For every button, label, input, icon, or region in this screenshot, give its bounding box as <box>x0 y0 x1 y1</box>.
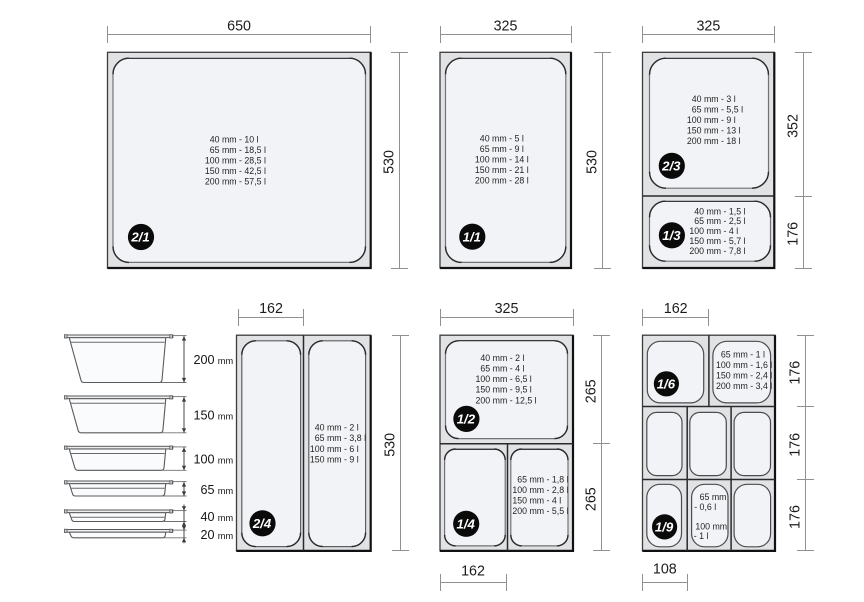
svg-text:150: 150 <box>310 454 325 464</box>
svg-text:mm: mm <box>709 492 726 502</box>
svg-text:mm - 1,6 l: mm - 1,6 l <box>731 360 773 370</box>
svg-text:mm - 10 l: mm - 10 l <box>220 134 259 144</box>
svg-text:162: 162 <box>461 563 485 579</box>
svg-text:65: 65 <box>315 433 325 443</box>
svg-text:150: 150 <box>716 371 731 381</box>
svg-text:mm: mm <box>218 412 234 422</box>
svg-text:2/1: 2/1 <box>130 230 149 245</box>
svg-text:162: 162 <box>259 301 283 317</box>
svg-text:100: 100 <box>476 374 491 384</box>
svg-text:100: 100 <box>716 360 731 370</box>
svg-text:mm - 2,5 l: mm - 2,5 l <box>704 216 746 226</box>
svg-text:265: 265 <box>583 379 599 403</box>
svg-text:325: 325 <box>495 301 519 317</box>
svg-text:1/9: 1/9 <box>655 520 674 535</box>
svg-text:65: 65 <box>700 492 710 502</box>
svg-text:40: 40 <box>315 423 325 433</box>
svg-text:mm - 18 l: mm - 18 l <box>702 136 741 146</box>
svg-text:mm - 42,5 l: mm - 42,5 l <box>220 166 266 176</box>
svg-text:mm - 9 l: mm - 9 l <box>325 454 359 464</box>
svg-text:mm: mm <box>218 513 234 523</box>
svg-text:1/2: 1/2 <box>457 412 476 427</box>
svg-text:2/3: 2/3 <box>661 159 681 174</box>
svg-text:100: 100 <box>512 485 527 495</box>
svg-text:- 0,6 l: - 0,6 l <box>694 502 716 512</box>
svg-text:mm - 1,5 l: mm - 1,5 l <box>704 206 746 216</box>
svg-text:65: 65 <box>200 483 214 497</box>
svg-text:150: 150 <box>476 385 491 395</box>
svg-text:mm - 9,5 l: mm - 9,5 l <box>490 385 532 395</box>
svg-text:162: 162 <box>664 301 688 317</box>
svg-text:1/4: 1/4 <box>457 517 476 532</box>
svg-text:mm - 5,7 l: mm - 5,7 l <box>704 236 746 246</box>
svg-text:1/1: 1/1 <box>463 229 481 244</box>
svg-text:mm - 18,5 l: mm - 18,5 l <box>220 145 266 155</box>
svg-text:mm - 2 l: mm - 2 l <box>490 353 524 363</box>
svg-text:mm - 6,5 l: mm - 6,5 l <box>490 374 532 384</box>
svg-text:100: 100 <box>695 522 710 532</box>
svg-text:200: 200 <box>512 506 527 516</box>
svg-text:40: 40 <box>480 133 490 143</box>
svg-text:40: 40 <box>480 353 490 363</box>
svg-text:mm - 14 l: mm - 14 l <box>490 155 529 165</box>
svg-text:mm - 2,4 l: mm - 2,4 l <box>731 371 773 381</box>
svg-text:mm: mm <box>218 531 234 541</box>
svg-text:150: 150 <box>475 165 490 175</box>
svg-text:200: 200 <box>687 136 702 146</box>
svg-text:65: 65 <box>480 364 490 374</box>
svg-text:100: 100 <box>205 156 220 166</box>
svg-text:mm: mm <box>710 522 727 532</box>
svg-text:mm - 5,5 l: mm - 5,5 l <box>527 506 569 516</box>
svg-text:176: 176 <box>787 433 803 457</box>
svg-text:mm - 28,5 l: mm - 28,5 l <box>220 156 266 166</box>
svg-text:40: 40 <box>210 134 220 144</box>
svg-text:65: 65 <box>517 474 527 484</box>
svg-text:mm - 2 l: mm - 2 l <box>325 423 359 433</box>
svg-text:mm - 2,8 l: mm - 2,8 l <box>527 485 569 495</box>
svg-text:mm - 5,5 l: mm - 5,5 l <box>702 104 744 114</box>
svg-text:352: 352 <box>785 114 801 138</box>
svg-text:mm - 57,5 l: mm - 57,5 l <box>220 177 266 187</box>
svg-text:mm - 28 l: mm - 28 l <box>490 176 529 186</box>
svg-text:150: 150 <box>193 409 214 423</box>
svg-text:40: 40 <box>694 206 704 216</box>
svg-text:176: 176 <box>787 505 803 529</box>
svg-text:325: 325 <box>696 18 720 34</box>
svg-text:100: 100 <box>310 444 325 454</box>
svg-text:176: 176 <box>785 222 801 246</box>
svg-text:mm - 4 l: mm - 4 l <box>490 364 524 374</box>
svg-text:265: 265 <box>583 487 599 511</box>
svg-text:100: 100 <box>689 226 704 236</box>
svg-text:530: 530 <box>382 433 398 457</box>
svg-text:530: 530 <box>584 150 600 174</box>
svg-text:mm - 5 l: mm - 5 l <box>490 133 524 143</box>
svg-text:mm - 13 l: mm - 13 l <box>702 126 741 136</box>
svg-text:mm - 7,8 l: mm - 7,8 l <box>704 246 746 256</box>
svg-text:40: 40 <box>692 94 702 104</box>
svg-text:530: 530 <box>381 150 397 174</box>
svg-text:108: 108 <box>653 562 677 578</box>
svg-text:1/3: 1/3 <box>662 228 681 243</box>
svg-text:650: 650 <box>227 18 251 34</box>
svg-text:150: 150 <box>687 126 702 136</box>
svg-text:176: 176 <box>787 361 803 385</box>
svg-text:mm - 3,4 l: mm - 3,4 l <box>731 381 773 391</box>
svg-text:65: 65 <box>480 144 490 154</box>
svg-text:1/6: 1/6 <box>657 377 676 392</box>
svg-text:- 1 l: - 1 l <box>694 531 709 541</box>
svg-text:65: 65 <box>692 104 702 114</box>
svg-text:100: 100 <box>475 155 490 165</box>
svg-text:150: 150 <box>205 166 220 176</box>
svg-text:65: 65 <box>694 216 704 226</box>
svg-text:100: 100 <box>687 115 702 125</box>
svg-text:200: 200 <box>475 176 490 186</box>
svg-text:65: 65 <box>721 349 731 359</box>
svg-text:mm - 1 l: mm - 1 l <box>731 349 765 359</box>
svg-text:mm - 3,8 l: mm - 3,8 l <box>325 433 367 443</box>
svg-text:100: 100 <box>193 453 214 467</box>
svg-text:mm - 4 l: mm - 4 l <box>704 226 738 236</box>
svg-text:40: 40 <box>200 510 214 524</box>
svg-text:150: 150 <box>512 496 527 506</box>
svg-text:mm: mm <box>218 456 234 466</box>
svg-text:65: 65 <box>210 145 220 155</box>
svg-text:mm - 3 l: mm - 3 l <box>702 94 736 104</box>
svg-text:mm - 12,5 l: mm - 12,5 l <box>490 395 536 405</box>
svg-text:mm - 1,8 l: mm - 1,8 l <box>527 474 569 484</box>
svg-text:2/4: 2/4 <box>252 516 272 531</box>
svg-text:mm - 4 l: mm - 4 l <box>527 496 561 506</box>
svg-text:mm: mm <box>218 486 234 496</box>
svg-text:200: 200 <box>716 381 731 391</box>
svg-text:20: 20 <box>200 528 214 542</box>
svg-text:mm - 21 l: mm - 21 l <box>490 165 529 175</box>
svg-text:200: 200 <box>205 177 220 187</box>
svg-text:mm - 9 l: mm - 9 l <box>702 115 736 125</box>
svg-text:150: 150 <box>689 236 704 246</box>
svg-text:mm - 6 l: mm - 6 l <box>325 444 359 454</box>
svg-text:200: 200 <box>689 246 704 256</box>
svg-text:mm - 9 l: mm - 9 l <box>490 144 524 154</box>
svg-text:200: 200 <box>476 395 491 405</box>
svg-text:325: 325 <box>494 18 518 34</box>
svg-text:mm: mm <box>218 356 234 366</box>
svg-text:200: 200 <box>193 353 214 367</box>
